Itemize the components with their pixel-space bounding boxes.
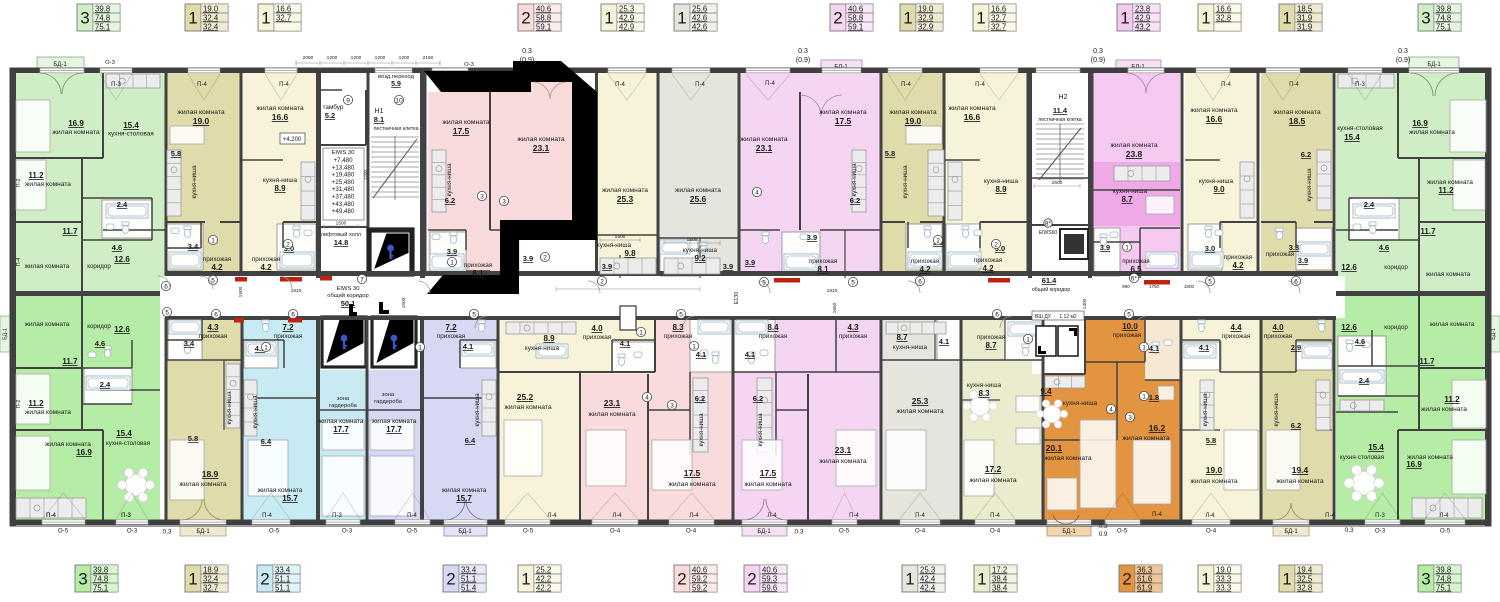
svg-text:42.9: 42.9	[619, 22, 634, 31]
svg-text:15.4: 15.4	[123, 121, 139, 130]
svg-text:зона: зона	[382, 392, 395, 398]
svg-text:51.1: 51.1	[461, 574, 476, 583]
svg-text:6.5: 6.5	[1130, 265, 1142, 274]
svg-text:33.3: 33.3	[1216, 583, 1231, 592]
svg-text:25.3: 25.3	[617, 194, 634, 204]
svg-text:50.1: 50.1	[341, 299, 356, 308]
svg-text:1: 1	[1282, 9, 1291, 28]
svg-text:жилая комната: жилая комната	[1426, 271, 1471, 278]
svg-text:2.9: 2.9	[1291, 343, 1301, 352]
svg-text:2: 2	[260, 570, 269, 589]
svg-text:16.6: 16.6	[272, 112, 289, 122]
svg-text:6.2: 6.2	[695, 394, 705, 403]
svg-text:6: 6	[918, 278, 922, 285]
svg-text:1: 1	[677, 9, 686, 28]
svg-text:кухня-ниша: кухня-ниша	[263, 177, 298, 184]
svg-text:36.3: 36.3	[1137, 565, 1152, 574]
svg-text:жилая комната: жилая комната	[442, 119, 490, 126]
svg-text:О-4: О-4	[990, 528, 1001, 535]
svg-text:О-5: О-5	[407, 528, 418, 535]
svg-text:прихожая: прихожая	[252, 256, 281, 263]
svg-text:3: 3	[480, 193, 484, 200]
svg-text:5.2: 5.2	[325, 111, 335, 120]
svg-text:П-3: П-3	[1375, 513, 1385, 519]
svg-text:75.1: 75.1	[93, 583, 108, 592]
svg-text:кухня-ниша: кухня-ниша	[1199, 178, 1234, 185]
svg-text:1: 1	[1026, 336, 1030, 343]
svg-text:(0.9): (0.9)	[1091, 57, 1105, 64]
svg-text:2: 2	[286, 241, 290, 248]
svg-text:кухня-ниша: кухня-ниша	[893, 344, 928, 351]
svg-text:О-3: О-3	[342, 528, 353, 535]
svg-text:кухня-ниша: кухня-ниша	[1202, 393, 1209, 427]
svg-text:38.4: 38.4	[992, 574, 1008, 583]
svg-text:61.4: 61.4	[1042, 276, 1057, 285]
svg-text:общий коридор: общий коридор	[327, 292, 369, 299]
svg-text:кухня-ниша: кухня-ниша	[698, 413, 705, 447]
svg-text:Е130: Е130	[734, 292, 740, 305]
svg-text:1: 1	[976, 9, 985, 28]
svg-text:8.7: 8.7	[896, 333, 908, 342]
svg-text:6.2: 6.2	[753, 394, 763, 403]
svg-text:6: 6	[164, 283, 168, 290]
svg-text:42.4: 42.4	[920, 574, 936, 583]
svg-text:12.6: 12.6	[114, 325, 130, 334]
svg-text:жилая комната: жилая комната	[1409, 129, 1455, 136]
svg-text:5: 5	[851, 279, 855, 286]
svg-text:жилая комната: жилая комната	[25, 263, 70, 270]
svg-text:4.2: 4.2	[919, 265, 931, 274]
svg-text:прихожая: прихожая	[1113, 332, 1142, 339]
svg-text:4: 4	[1109, 406, 1113, 413]
svg-text:17.5: 17.5	[835, 116, 852, 126]
svg-text:+7,480: +7,480	[333, 157, 353, 164]
svg-text:17.7: 17.7	[333, 425, 349, 434]
svg-text:32.5: 32.5	[1297, 574, 1313, 583]
svg-text:1: 1	[1201, 9, 1210, 28]
svg-text:15.7: 15.7	[456, 494, 472, 503]
svg-text:+37,480: +37,480	[332, 194, 355, 201]
svg-text:прихожая: прихожая	[974, 257, 1003, 264]
svg-text:11.2: 11.2	[28, 399, 44, 408]
svg-text:кухня-ниша: кухня-ниша	[851, 163, 858, 197]
svg-text:лестничная клетка: лестничная клетка	[1038, 117, 1082, 123]
svg-text:39.8: 39.8	[1436, 4, 1451, 13]
svg-text:кухня-ниша: кухня-ниша	[1063, 400, 1098, 407]
svg-text:32.9: 32.9	[918, 13, 933, 22]
svg-text:6.4: 6.4	[261, 437, 272, 446]
svg-text:1: 1	[604, 9, 613, 28]
svg-text:10: 10	[395, 97, 403, 104]
svg-text:19.0: 19.0	[1206, 465, 1223, 475]
svg-text:П-4: П-4	[695, 82, 705, 88]
svg-text:14.8: 14.8	[334, 238, 349, 247]
svg-text:прихожая: прихожая	[1224, 254, 1253, 261]
svg-text:6.2: 6.2	[1291, 421, 1301, 430]
svg-text:4.2: 4.2	[260, 263, 272, 272]
svg-text:0.3: 0.3	[1398, 48, 1408, 55]
svg-text:0,3: 0,3	[162, 529, 171, 536]
svg-text:кухня-ниша: кухня-ниша	[967, 382, 1002, 389]
svg-text:74.8: 74.8	[1436, 13, 1451, 22]
svg-text:16.6: 16.6	[1216, 4, 1231, 13]
svg-text:жилая комната: жилая комната	[504, 404, 552, 411]
svg-text:жилая комната: жилая комната	[1421, 406, 1467, 413]
svg-text:(0.9): (0.9)	[1396, 57, 1410, 64]
svg-text:П-4: П-4	[990, 513, 1000, 519]
svg-text:3: 3	[1421, 570, 1430, 589]
svg-text:жилая комната: жилая комната	[517, 136, 565, 143]
svg-text:жилая комната: жилая комната	[602, 187, 648, 194]
svg-text:16.9: 16.9	[68, 119, 84, 128]
svg-text:8.7: 8.7	[985, 341, 997, 350]
svg-text:жилая комната: жилая комната	[1190, 478, 1238, 485]
svg-text:51.4: 51.4	[461, 583, 477, 592]
svg-text:3.9: 3.9	[523, 254, 533, 263]
svg-text:1300: 1300	[1082, 298, 1088, 309]
svg-text:4.1: 4.1	[939, 337, 949, 346]
svg-text:23.1: 23.1	[756, 143, 773, 153]
svg-text:О-3: О-3	[1375, 528, 1386, 535]
svg-text:8.9: 8.9	[543, 334, 555, 343]
svg-text:жилая комната: жилая комната	[319, 418, 364, 425]
svg-text:5: 5	[679, 311, 683, 318]
svg-text:4: 4	[645, 394, 649, 401]
svg-text:О-3: О-3	[464, 62, 474, 68]
svg-text:17.2: 17.2	[985, 464, 1002, 474]
svg-text:П-4: П-4	[901, 82, 911, 88]
svg-text:прихожая: прихожая	[199, 333, 228, 340]
svg-text:0.3: 0.3	[1344, 527, 1353, 534]
svg-text:5.8: 5.8	[171, 149, 181, 158]
svg-text:0.3: 0.3	[1099, 523, 1108, 530]
svg-text:Н1: Н1	[375, 108, 384, 115]
svg-text:5.9: 5.9	[391, 81, 401, 88]
svg-text:П-4: П-4	[915, 513, 925, 519]
svg-text:9.0: 9.0	[1213, 185, 1225, 194]
svg-text:1200: 1200	[399, 55, 410, 61]
svg-text:32.7: 32.7	[276, 13, 291, 22]
svg-text:1: 1	[692, 343, 696, 350]
svg-text:4.0: 4.0	[591, 324, 603, 333]
svg-text:1810: 1810	[291, 288, 302, 294]
svg-text:61.6: 61.6	[1137, 574, 1152, 583]
svg-text:1: 1	[905, 570, 914, 589]
svg-text:5: 5	[1208, 278, 1212, 285]
svg-text:1200: 1200	[363, 169, 368, 180]
svg-text:EIWS60: EIWS60	[1039, 230, 1058, 236]
svg-text:прихожая: прихожая	[911, 258, 940, 265]
svg-text:2: 2	[994, 241, 998, 248]
svg-text:П-4: П-4	[279, 82, 289, 88]
svg-text:жилая комната: жилая комната	[819, 458, 867, 465]
svg-text:17.5: 17.5	[760, 468, 777, 478]
svg-text:11.7: 11.7	[1420, 227, 1436, 236]
svg-text:1: 1	[903, 9, 912, 28]
svg-text:1900: 1900	[238, 286, 244, 297]
svg-text:40.6: 40.6	[536, 4, 551, 13]
svg-text:П-3: П-3	[1355, 82, 1365, 88]
svg-text:БД-1: БД-1	[1427, 62, 1441, 68]
svg-text:1: 1	[418, 344, 422, 351]
svg-text:лестничная клетка: лестничная клетка	[373, 126, 418, 132]
svg-text:32.4: 32.4	[203, 13, 219, 22]
svg-text:3.4: 3.4	[188, 242, 199, 251]
svg-text:+13,480: +13,480	[332, 164, 355, 171]
svg-text:6.2: 6.2	[1301, 150, 1311, 159]
svg-text:прихожая: прихожая	[809, 258, 838, 265]
svg-text:гардероба: гардероба	[329, 403, 358, 409]
svg-text:кухня-ниша: кухня-ниша	[1306, 168, 1313, 202]
svg-text:П-3: П-3	[121, 513, 131, 519]
svg-text:59.1: 59.1	[536, 22, 551, 31]
svg-text:43.2: 43.2	[1135, 22, 1150, 31]
svg-text:33.4: 33.4	[275, 565, 291, 574]
svg-text:прихожая: прихожая	[759, 333, 788, 340]
svg-text:+43,480: +43,480	[332, 201, 355, 208]
svg-text:25.3: 25.3	[619, 4, 634, 13]
svg-text:1200: 1200	[351, 55, 362, 61]
svg-text:5.8: 5.8	[1206, 436, 1216, 445]
svg-text:жилая комната: жилая комната	[25, 409, 71, 416]
svg-text:БД-1: БД-1	[458, 529, 472, 535]
svg-text:прихожая: прихожая	[583, 334, 612, 341]
svg-text:кухня-ниша: кухня-ниша	[1113, 188, 1148, 195]
svg-text:жилая комната: жилая комната	[1430, 321, 1475, 328]
svg-text:31.9: 31.9	[1297, 22, 1312, 31]
svg-text:8.3: 8.3	[978, 389, 990, 398]
svg-text:17.5: 17.5	[453, 126, 470, 136]
svg-text:жилая комната: жилая комната	[889, 109, 937, 116]
svg-text:2: 2	[543, 254, 547, 261]
svg-text:П-4: П-4	[765, 81, 775, 87]
svg-text:16.6: 16.6	[1206, 114, 1223, 124]
svg-text:59.3: 59.3	[762, 574, 777, 583]
svg-text:75.1: 75.1	[1436, 22, 1451, 31]
svg-text:40.6: 40.6	[692, 565, 707, 574]
svg-text:32.8: 32.8	[1216, 13, 1231, 22]
svg-text:25.2: 25.2	[536, 565, 551, 574]
svg-text:25.3: 25.3	[912, 396, 929, 406]
svg-text:кухня-столовая: кухня-столовая	[106, 440, 150, 447]
svg-text:1200: 1200	[375, 55, 386, 61]
svg-text:19.0: 19.0	[918, 4, 934, 13]
svg-text:4.1: 4.1	[745, 350, 755, 359]
svg-text:БД-1: БД-1	[1491, 328, 1497, 340]
svg-text:П-4: П-4	[1152, 512, 1162, 518]
svg-text:32.8: 32.8	[1297, 583, 1312, 592]
svg-text:7.2: 7.2	[282, 323, 294, 332]
svg-text:О-4: О-4	[1206, 528, 1217, 535]
svg-text:1: 1	[211, 237, 215, 244]
svg-text:12.6: 12.6	[114, 255, 130, 264]
svg-text:прихожая: прихожая	[839, 333, 868, 340]
svg-text:1: 1	[1282, 570, 1291, 589]
svg-text:6.4: 6.4	[465, 436, 476, 445]
svg-text:(0.9): (0.9)	[796, 57, 810, 64]
svg-text:1: 1	[1201, 570, 1210, 589]
svg-text:общий коридор: общий коридор	[1032, 286, 1071, 293]
svg-text:23.1: 23.1	[835, 445, 852, 455]
svg-text:19.0: 19.0	[905, 116, 922, 126]
svg-text:кухня-столовая: кухня-столовая	[108, 131, 154, 138]
svg-text:2: 2	[521, 9, 530, 28]
svg-text:кухня-ниша: кухня-ниша	[191, 165, 198, 199]
svg-text:23.1: 23.1	[604, 398, 621, 408]
svg-text:4.2: 4.2	[211, 263, 223, 272]
svg-text:16.2: 16.2	[1149, 423, 1166, 433]
svg-text:жилая комната: жилая комната	[675, 187, 721, 194]
svg-text:кухня-ниша: кухня-ниша	[446, 163, 453, 197]
svg-text:1810: 1810	[827, 288, 838, 294]
svg-text:3.4: 3.4	[184, 339, 195, 348]
svg-text:42.4: 42.4	[920, 583, 936, 592]
svg-text:1: 1	[1125, 244, 1129, 251]
svg-text:кухня-ниша: кухня-ниша	[902, 165, 909, 199]
svg-text:2: 2	[1122, 570, 1131, 589]
svg-text:23.8: 23.8	[1135, 4, 1150, 13]
svg-text:3.9: 3.9	[1298, 256, 1308, 265]
svg-text:1: 1	[264, 344, 268, 351]
svg-text:3: 3	[502, 198, 506, 205]
svg-text:18.5: 18.5	[1297, 4, 1313, 13]
svg-text:жилая комната: жилая комната	[442, 487, 487, 494]
svg-text:4.3: 4.3	[207, 323, 219, 332]
svg-text:Л-4: Л-4	[689, 513, 699, 519]
svg-text:9.8: 9.8	[624, 249, 636, 258]
svg-text:кухня-ниша: кухня-ниша	[1273, 393, 1280, 427]
svg-text:1800: 1800	[1184, 284, 1195, 289]
svg-text:Л-4: Л-4	[547, 513, 557, 519]
svg-text:1500: 1500	[401, 297, 407, 308]
svg-text:коридор: коридор	[1384, 264, 1408, 271]
svg-text:коридор: коридор	[87, 323, 111, 330]
svg-text:3: 3	[80, 9, 89, 28]
svg-text:58.8: 58.8	[536, 13, 551, 22]
svg-text:кухня-ниша: кухня-ниша	[525, 345, 560, 352]
svg-text:7: 7	[360, 276, 364, 283]
svg-text:32.9: 32.9	[918, 22, 933, 31]
svg-text:11.2: 11.2	[1444, 395, 1460, 404]
svg-text:жилая комната: жилая комната	[1044, 455, 1092, 462]
svg-text:6.2: 6.2	[850, 196, 860, 205]
svg-text:19.4: 19.4	[1297, 565, 1313, 574]
svg-text:8.1: 8.1	[472, 269, 484, 278]
svg-text:жилая комната: жилая комната	[25, 181, 71, 188]
svg-text:20.1: 20.1	[1046, 443, 1063, 453]
svg-text:40.6: 40.6	[848, 4, 863, 13]
svg-text:16.6: 16.6	[276, 4, 291, 13]
svg-text:51.1: 51.1	[275, 583, 290, 592]
svg-text:2: 2	[446, 570, 455, 589]
svg-text:жилая комната: жилая комната	[1190, 107, 1238, 114]
svg-text:2: 2	[936, 237, 940, 244]
svg-text:П-4: П-4	[1289, 82, 1299, 88]
svg-text:1500: 1500	[615, 234, 626, 240]
svg-text:П-2: П-2	[16, 179, 22, 188]
svg-text:4.6: 4.6	[95, 339, 105, 348]
svg-text:1: 1	[521, 570, 530, 589]
svg-text:2.4: 2.4	[100, 380, 111, 389]
svg-text:990: 990	[1122, 284, 1130, 289]
svg-text:1: 1	[450, 259, 454, 266]
svg-text:+49,480: +49,480	[332, 208, 355, 215]
svg-text:2: 2	[833, 9, 842, 28]
svg-text:2.4: 2.4	[117, 200, 128, 209]
svg-text:жилая комната: жилая комната	[372, 418, 417, 425]
svg-text:2: 2	[747, 570, 756, 589]
svg-text:42.9: 42.9	[619, 13, 634, 22]
svg-text:зона: зона	[337, 396, 350, 402]
svg-text:11.7: 11.7	[1419, 357, 1435, 366]
svg-text:жилая комната: жилая комната	[948, 105, 996, 112]
svg-text:3.0: 3.0	[1205, 244, 1215, 253]
svg-text:15.4: 15.4	[116, 429, 132, 438]
svg-text:8.9: 8.9	[274, 184, 286, 193]
svg-text:О-4: О-4	[610, 528, 621, 535]
svg-text:15.7: 15.7	[282, 494, 298, 503]
svg-text:прихожая: прихожая	[664, 333, 693, 340]
svg-text:58.8: 58.8	[848, 13, 863, 22]
svg-text:кухня-столовая: кухня-столовая	[1340, 454, 1384, 461]
svg-text:15.4: 15.4	[1368, 443, 1384, 452]
svg-text:О-5: О-5	[523, 528, 534, 535]
svg-text:4.1: 4.1	[696, 350, 706, 359]
svg-text:ВШ ДУ: ВШ ДУ	[1035, 314, 1052, 320]
svg-text:15.4: 15.4	[1344, 133, 1360, 142]
svg-text:1650: 1650	[832, 302, 838, 313]
svg-text:О-5: О-5	[1440, 528, 1451, 535]
svg-text:39.8: 39.8	[93, 565, 108, 574]
svg-text:кухня-ниша: кухня-ниша	[683, 247, 718, 254]
svg-text:4.1: 4.1	[1199, 343, 1209, 352]
svg-text:11.7: 11.7	[62, 357, 78, 366]
svg-text:О-5: О-5	[58, 528, 69, 535]
svg-text:59.2: 59.2	[692, 583, 707, 592]
svg-text:1: 1	[188, 9, 197, 28]
svg-text:П-4: П-4	[1221, 82, 1231, 88]
svg-text:+25,480: +25,480	[332, 179, 355, 186]
svg-text:1: 1	[639, 329, 643, 336]
svg-text:11.4: 11.4	[1053, 106, 1068, 115]
svg-text:кухня-ниша: кухня-ниша	[984, 178, 1019, 185]
svg-text:тамбур: тамбур	[323, 103, 344, 111]
svg-text:жилая комната: жилая комната	[256, 105, 304, 112]
svg-text:2: 2	[677, 570, 686, 589]
svg-text:4.6: 4.6	[1379, 243, 1389, 252]
svg-text:23.1: 23.1	[533, 143, 550, 153]
svg-text:74.8: 74.8	[1436, 574, 1451, 583]
svg-text:жилая комната: жилая комната	[1273, 109, 1321, 116]
svg-text:11.2: 11.2	[1438, 186, 1454, 195]
svg-text:4.2: 4.2	[1232, 261, 1244, 270]
svg-text:4.4: 4.4	[1230, 323, 1242, 332]
svg-text:2080: 2080	[303, 55, 314, 61]
svg-text:8.9: 8.9	[995, 185, 1007, 194]
svg-text:прихожая: прихожая	[464, 262, 493, 269]
svg-text:6: 6	[995, 311, 999, 318]
svg-text:прихожая: прихожая	[1222, 333, 1251, 340]
svg-text:12.6: 12.6	[1341, 323, 1357, 332]
svg-text:+4,200: +4,200	[283, 137, 302, 143]
svg-text:0.3: 0.3	[1093, 48, 1103, 55]
svg-text:кухня-ниша: кухня-ниша	[597, 242, 632, 249]
svg-text:4.0: 4.0	[1272, 323, 1284, 332]
svg-text:2.4: 2.4	[1364, 200, 1375, 209]
svg-text:EIWS 30: EIWS 30	[337, 286, 360, 292]
svg-text:БД-1: БД-1	[1062, 529, 1076, 535]
svg-text:Л-4: Л-4	[767, 513, 777, 519]
